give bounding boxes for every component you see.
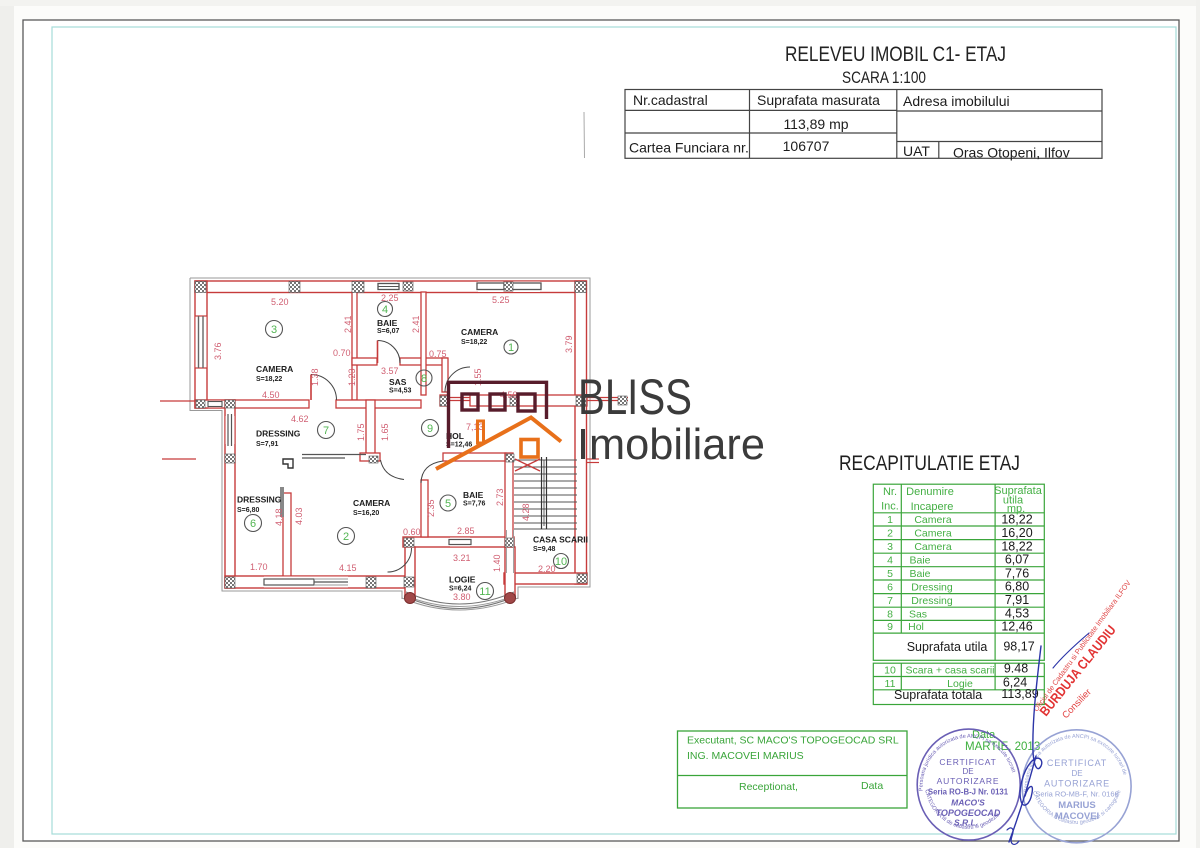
svg-text:7: 7	[887, 595, 893, 607]
svg-text:4.50: 4.50	[262, 390, 280, 400]
svg-text:Baie: Baie	[909, 555, 930, 567]
svg-text:6,07: 6,07	[1005, 553, 1029, 567]
svg-text:3.80: 3.80	[453, 592, 471, 602]
svg-text:12,46: 12,46	[1001, 620, 1032, 634]
svg-text:5.20: 5.20	[271, 297, 289, 307]
svg-text:Receptionat,: Receptionat,	[739, 781, 798, 793]
svg-text:Suprafata masurata: Suprafata masurata	[757, 92, 880, 108]
svg-text:Suprafata totala: Suprafata totala	[894, 688, 982, 702]
svg-text:10: 10	[884, 665, 896, 677]
svg-text:LOGIE: LOGIE	[449, 575, 476, 585]
svg-text:DE: DE	[962, 767, 973, 776]
svg-text:CERTIFICAT: CERTIFICAT	[1047, 758, 1107, 768]
svg-text:3.57: 3.57	[381, 366, 399, 376]
svg-text:Inc.: Inc.	[881, 501, 899, 513]
svg-text:Seria RO-B-J Nr. 0131: Seria RO-B-J Nr. 0131	[928, 788, 1009, 797]
svg-text:BLISS: BLISS	[578, 369, 692, 425]
svg-text:7: 7	[323, 425, 329, 437]
svg-text:106707: 106707	[783, 138, 830, 154]
svg-text:Camera: Camera	[914, 514, 952, 526]
svg-text:2.25: 2.25	[381, 293, 399, 303]
svg-text:10: 10	[555, 556, 567, 568]
svg-text:9: 9	[887, 621, 893, 633]
svg-text:Imobiliare: Imobiliare	[577, 420, 765, 469]
svg-text:5: 5	[887, 568, 893, 580]
svg-text:Baie: Baie	[909, 568, 930, 580]
svg-text:4,53: 4,53	[1005, 607, 1029, 621]
svg-text:Seria RO-MB-F, Nr. 0166: Seria RO-MB-F, Nr. 0166	[1035, 790, 1118, 799]
svg-text:6,80: 6,80	[1005, 580, 1029, 594]
svg-text:0.75: 0.75	[429, 349, 447, 359]
svg-text:RECAPITULATIE ETAJ: RECAPITULATIE ETAJ	[839, 451, 1020, 475]
svg-text:Sas: Sas	[909, 608, 927, 620]
svg-text:2.73: 2.73	[495, 488, 505, 506]
svg-text:S=18,22: S=18,22	[461, 339, 487, 346]
svg-text:18,22: 18,22	[1001, 513, 1032, 527]
svg-text:2.41: 2.41	[343, 315, 353, 333]
svg-text:Nr.: Nr.	[883, 486, 897, 498]
svg-text:UAT: UAT	[903, 143, 930, 159]
svg-text:1.23: 1.23	[347, 368, 357, 386]
svg-text:1: 1	[508, 342, 514, 354]
svg-text:113,89 mp: 113,89 mp	[783, 116, 848, 132]
svg-text:CERTIFICAT: CERTIFICAT	[939, 757, 996, 767]
svg-text:S=16,20: S=16,20	[353, 510, 379, 517]
svg-text:MACOVEI: MACOVEI	[1055, 811, 1099, 822]
svg-text:6: 6	[887, 582, 893, 594]
svg-text:CAMERA: CAMERA	[256, 364, 293, 374]
svg-text:3: 3	[271, 324, 277, 336]
svg-text:7,91: 7,91	[1005, 593, 1029, 607]
svg-text:9.48: 9.48	[1004, 662, 1028, 676]
svg-text:S.R.L.: S.R.L.	[954, 818, 978, 828]
svg-text:Dressing: Dressing	[911, 582, 953, 594]
svg-text:S=9,48: S=9,48	[533, 546, 555, 553]
svg-text:2.35: 2.35	[426, 499, 436, 517]
svg-text:1: 1	[887, 514, 893, 526]
svg-text:6: 6	[250, 518, 256, 530]
svg-text:MARIUS: MARIUS	[1058, 800, 1095, 811]
svg-text:Suprafata utila: Suprafata utila	[907, 640, 988, 654]
svg-text:S=6,80: S=6,80	[237, 507, 259, 514]
svg-text:3.21: 3.21	[453, 553, 471, 563]
svg-text:S=6,07: S=6,07	[377, 328, 399, 335]
svg-text:DE: DE	[1071, 769, 1082, 778]
svg-text:0.60: 0.60	[403, 527, 421, 537]
svg-text:4.15: 4.15	[339, 563, 357, 573]
svg-text:2.41: 2.41	[411, 315, 421, 333]
svg-text:Incapere: Incapere	[911, 501, 954, 513]
svg-text:5.25: 5.25	[492, 295, 510, 305]
svg-text:1.75: 1.75	[356, 423, 366, 441]
svg-text:Denumire: Denumire	[906, 486, 954, 498]
svg-text:3.79: 3.79	[564, 335, 574, 353]
svg-text:CAMERA: CAMERA	[461, 327, 498, 337]
svg-text:SAS: SAS	[389, 377, 407, 387]
svg-text:16,20: 16,20	[1001, 526, 1032, 540]
svg-text:TOPOGEOCAD: TOPOGEOCAD	[936, 808, 1001, 818]
svg-text:11: 11	[479, 586, 490, 598]
svg-text:SCARA 1:100: SCARA 1:100	[842, 68, 926, 87]
svg-text:Cartea Funciara nr.: Cartea Funciara nr.	[629, 140, 749, 156]
svg-text:ING. MACOVEI MARIUS: ING. MACOVEI MARIUS	[687, 750, 804, 762]
svg-text:BAIE: BAIE	[463, 490, 484, 500]
svg-text:Data: Data	[861, 780, 883, 792]
svg-text:9: 9	[427, 423, 433, 435]
svg-text:4.28: 4.28	[521, 503, 531, 521]
svg-text:AUTORIZARE: AUTORIZARE	[1044, 779, 1110, 789]
svg-text:Oras Otopeni, Ilfov: Oras Otopeni, Ilfov	[953, 145, 1070, 161]
svg-text:4.03: 4.03	[294, 507, 304, 525]
svg-text:18,22: 18,22	[1001, 540, 1032, 554]
svg-text:0.70: 0.70	[333, 348, 351, 358]
svg-text:S=4,53: S=4,53	[389, 388, 411, 395]
svg-text:7,76: 7,76	[1005, 567, 1029, 581]
svg-text:Camera: Camera	[914, 541, 952, 553]
svg-text:1.65: 1.65	[380, 423, 390, 441]
svg-text:Adresa imobilului: Adresa imobilului	[903, 93, 1010, 109]
svg-text:1.38: 1.38	[310, 368, 320, 386]
svg-text:AUTORIZARE: AUTORIZARE	[937, 776, 1000, 786]
svg-text:3.76: 3.76	[213, 342, 223, 360]
svg-text:3: 3	[887, 541, 893, 553]
svg-text:DRESSING: DRESSING	[237, 495, 282, 505]
svg-text:S=7,91: S=7,91	[256, 441, 278, 448]
svg-text:Executant, SC MACO'S TOPOGEOCA: Executant, SC MACO'S TOPOGEOCAD SRL	[687, 735, 899, 747]
svg-text:S=18,22: S=18,22	[256, 376, 282, 383]
svg-text:4: 4	[382, 304, 388, 316]
svg-text:8: 8	[887, 608, 893, 620]
svg-text:Scara + casa scarii: Scara + casa scarii	[906, 665, 995, 677]
svg-text:113,89: 113,89	[1001, 687, 1038, 701]
svg-text:4.62: 4.62	[291, 414, 309, 424]
svg-text:1.40: 1.40	[492, 554, 502, 572]
svg-text:CAMERA: CAMERA	[353, 498, 390, 508]
svg-text:Camera: Camera	[914, 528, 952, 540]
svg-text:MACO'S: MACO'S	[951, 798, 985, 808]
svg-text:4: 4	[887, 555, 893, 567]
svg-text:5: 5	[445, 498, 451, 510]
svg-text:1.70: 1.70	[250, 562, 268, 572]
svg-text:2.20: 2.20	[538, 564, 556, 574]
svg-text:S=7,76: S=7,76	[463, 501, 485, 508]
svg-text:98,17: 98,17	[1003, 640, 1034, 654]
svg-text:RELEVEU IMOBIL C1- ETAJ: RELEVEU IMOBIL C1- ETAJ	[785, 42, 1006, 66]
svg-text:Dressing: Dressing	[911, 595, 953, 607]
svg-text:Nr.cadastral: Nr.cadastral	[633, 92, 708, 108]
svg-text:2.85: 2.85	[457, 526, 475, 536]
svg-text:CASA SCARII: CASA SCARII	[533, 535, 588, 545]
svg-text:2: 2	[343, 531, 349, 543]
svg-text:DRESSING: DRESSING	[256, 429, 301, 439]
svg-text:BAIE: BAIE	[377, 318, 398, 328]
svg-text:8: 8	[421, 373, 427, 385]
svg-text:4.18: 4.18	[274, 508, 284, 526]
svg-text:Hol: Hol	[908, 621, 924, 633]
svg-text:7,13: 7,13	[466, 422, 484, 432]
svg-text:2: 2	[887, 528, 893, 540]
